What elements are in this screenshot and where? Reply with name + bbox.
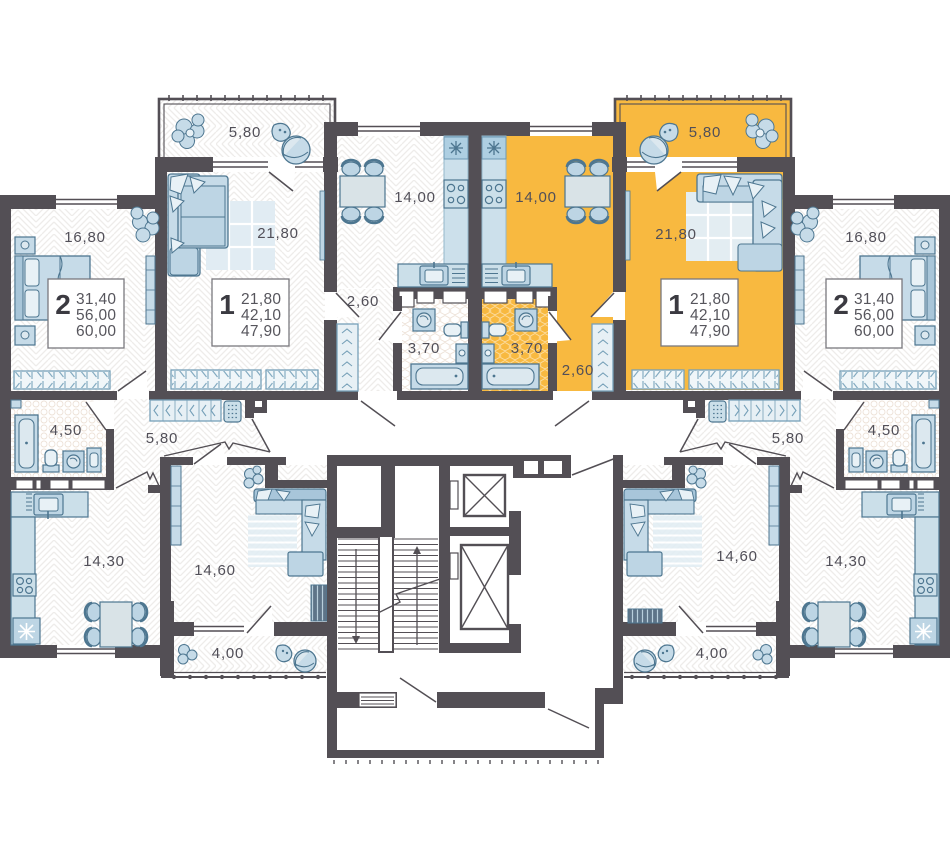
svg-text:14,00: 14,00 (515, 189, 557, 206)
svg-text:42,10: 42,10 (241, 307, 281, 324)
svg-text:16,80: 16,80 (845, 229, 887, 246)
svg-text:2,60: 2,60 (347, 293, 379, 310)
svg-text:2: 2 (833, 289, 849, 320)
svg-text:4,00: 4,00 (212, 645, 244, 662)
svg-text:4,00: 4,00 (696, 645, 728, 662)
svg-text:60,00: 60,00 (76, 323, 116, 340)
svg-text:3,70: 3,70 (511, 340, 543, 357)
svg-text:21,80: 21,80 (241, 291, 281, 308)
svg-text:56,00: 56,00 (854, 307, 894, 324)
svg-text:5,80: 5,80 (772, 430, 804, 447)
svg-text:2,60: 2,60 (562, 362, 594, 379)
svg-text:4,50: 4,50 (50, 422, 82, 439)
svg-text:42,10: 42,10 (690, 307, 730, 324)
svg-text:2: 2 (55, 289, 71, 320)
svg-text:1: 1 (219, 289, 235, 320)
svg-text:14,60: 14,60 (194, 562, 236, 579)
svg-text:1: 1 (668, 289, 684, 320)
svg-text:3,70: 3,70 (408, 340, 440, 357)
svg-text:16,80: 16,80 (64, 229, 106, 246)
svg-text:14,30: 14,30 (825, 553, 867, 570)
svg-text:4,50: 4,50 (868, 422, 900, 439)
svg-text:5,80: 5,80 (146, 430, 178, 447)
svg-text:60,00: 60,00 (854, 323, 894, 340)
svg-text:14,00: 14,00 (394, 189, 436, 206)
svg-text:5,80: 5,80 (689, 124, 721, 141)
svg-text:31,40: 31,40 (854, 291, 894, 308)
svg-text:47,90: 47,90 (690, 323, 730, 340)
svg-text:56,00: 56,00 (76, 307, 116, 324)
svg-text:21,80: 21,80 (655, 226, 697, 243)
svg-text:31,40: 31,40 (76, 291, 116, 308)
svg-text:14,60: 14,60 (716, 548, 758, 565)
svg-text:5,80: 5,80 (229, 124, 261, 141)
svg-text:14,30: 14,30 (83, 553, 125, 570)
svg-text:47,90: 47,90 (241, 323, 281, 340)
svg-text:21,80: 21,80 (690, 291, 730, 308)
svg-text:21,80: 21,80 (257, 225, 299, 242)
